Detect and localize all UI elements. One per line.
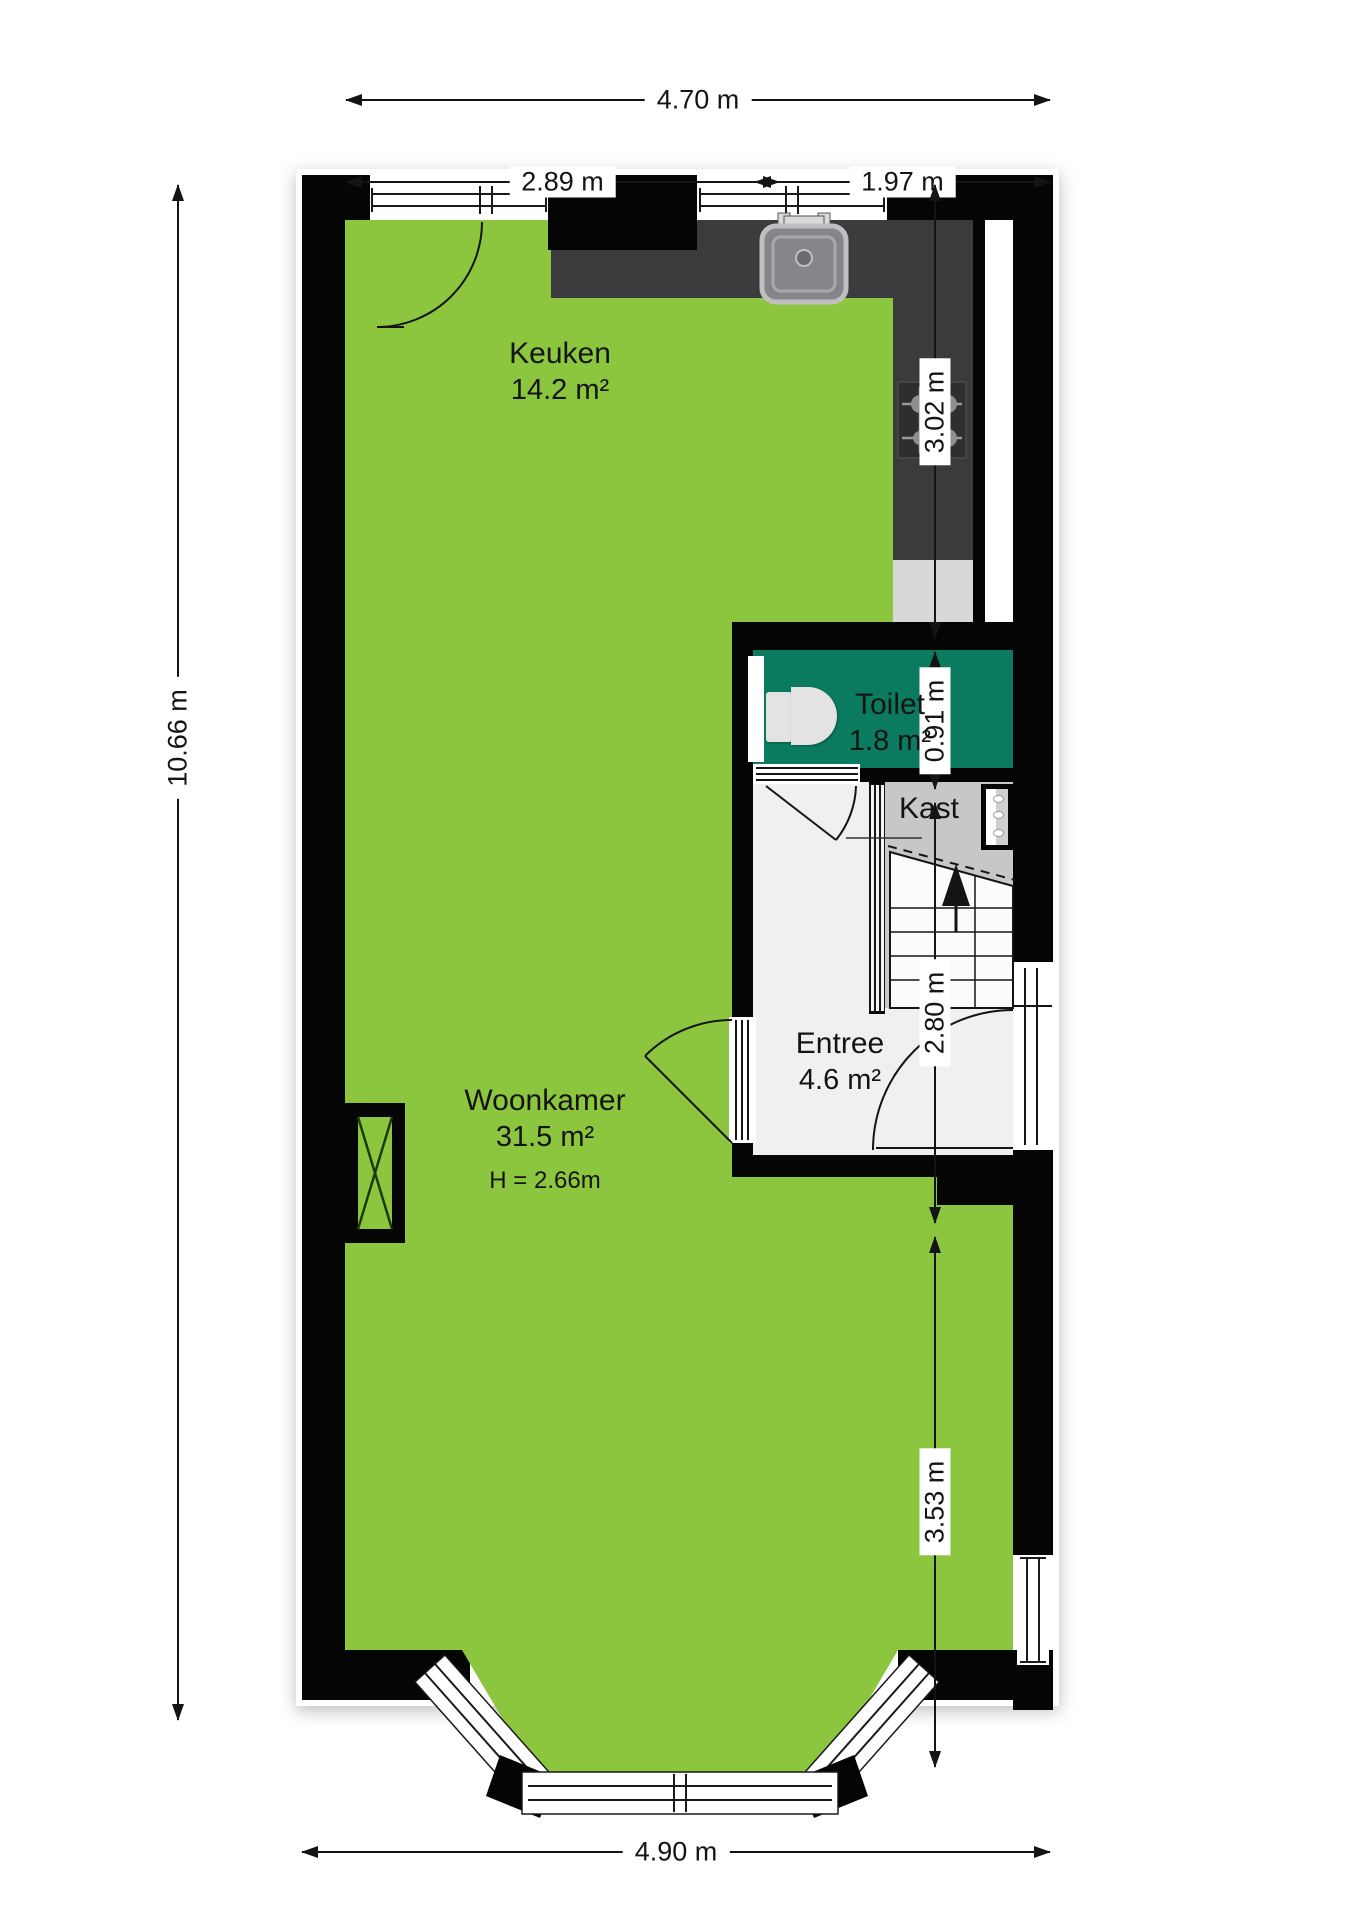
staircase — [888, 846, 1015, 1008]
dim-top-total: 4.70 m — [346, 88, 1050, 112]
room-name: Toilet — [790, 686, 990, 723]
dim-label: 10.66 m — [163, 677, 194, 799]
dim-label: 2.89 m — [509, 167, 616, 198]
room-label-kast: Kast — [869, 790, 989, 827]
room-area: 31.5 m² — [425, 1119, 665, 1156]
dim-bottom-total: 4.90 m — [302, 1840, 1050, 1864]
kitchen-garden-door — [377, 222, 482, 327]
dim-top-right: 1.97 m — [755, 170, 1050, 194]
ceiling-height: H = 2.66m — [425, 1162, 665, 1199]
toilet-door — [756, 768, 858, 840]
room-label-toilet: Toilet 1.8 m² — [790, 686, 990, 760]
dim-right-entree: 2.80 m — [923, 803, 947, 1223]
dim-label: 4.70 m — [645, 85, 752, 116]
room-name: Entree — [730, 1025, 950, 1062]
plan-linework — [0, 0, 1358, 1920]
dim-left-total: 10.66 m — [166, 185, 190, 1720]
room-area: 4.6 m² — [730, 1062, 950, 1099]
dim-right-living: 3.53 m — [923, 1237, 947, 1767]
dim-top-left: 2.89 m — [346, 170, 779, 194]
room-name: Woonkamer — [425, 1082, 665, 1119]
flue-shaft-x-icon — [358, 1117, 392, 1229]
room-label-woonkamer: Woonkamer 31.5 m² H = 2.66m — [425, 1082, 665, 1199]
bay-window — [415, 1650, 939, 1818]
room-name: Kast — [869, 790, 989, 827]
room-label-keuken: Keuken 14.2 m² — [450, 335, 670, 409]
room-label-entree: Entree 4.6 m² — [730, 1025, 950, 1099]
room-area: 14.2 m² — [450, 372, 670, 409]
dim-label: 4.90 m — [623, 1837, 730, 1868]
room-name: Keuken — [450, 335, 670, 372]
dim-right-kitchen: 3.02 m — [923, 185, 947, 638]
window-right-wall — [1017, 1555, 1049, 1665]
kitchen-sink-icon — [762, 213, 846, 302]
dim-label: 3.53 m — [920, 1449, 951, 1556]
floorplan-canvas: Keuken 14.2 m² Toilet 1.8 m² Kast Entree… — [0, 0, 1358, 1920]
dim-label: 3.02 m — [920, 358, 951, 465]
room-area: 1.8 m² — [790, 723, 990, 760]
